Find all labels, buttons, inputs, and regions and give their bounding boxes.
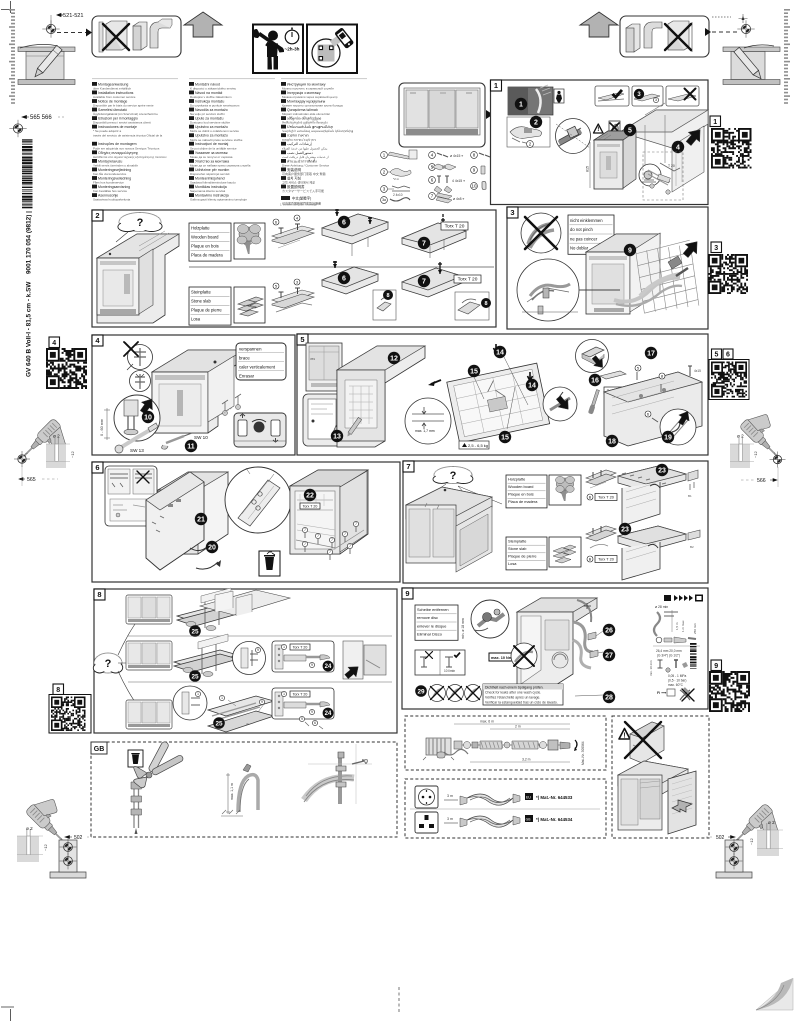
svg-text:502: 502	[74, 835, 83, 841]
svg-text:1: 1	[197, 692, 199, 696]
svg-text:8: 8	[56, 687, 60, 694]
svg-text:250 mm: 250 mm	[693, 623, 697, 634]
svg-text:SW 13: SW 13	[130, 448, 144, 453]
svg-text:29: 29	[417, 688, 425, 695]
svg-text:16: 16	[591, 378, 599, 385]
svg-text:7: 7	[422, 241, 426, 248]
svg-text:13: 13	[333, 434, 341, 441]
svg-text:Yetkili servis üzerinden u alı: Yetkili servis üzerinden u alınabilir	[93, 164, 138, 168]
svg-text:6: 6	[314, 721, 316, 725]
svg-text:min. 10 mm: min. 10 mm	[649, 660, 653, 676]
svg-text:Plaque en bois: Plaque en bois	[191, 244, 219, 249]
svg-text:Διατίθενται στα σημεία τεχνική: Διατίθενται στα σημεία τεχνικής εξυπηρέτ…	[93, 155, 167, 159]
svg-text:2: 2	[95, 211, 99, 220]
svg-text:502: 502	[716, 835, 725, 841]
svg-text:GB: GB	[526, 818, 532, 822]
svg-text:~12: ~12	[753, 450, 758, 458]
svg-text:يمكن الحصول عليها من خدمة العم: يمكن الحصول عليها من خدمة العملاء	[282, 146, 328, 150]
svg-text:22: 22	[306, 493, 314, 500]
svg-text:ø 4x15 ⌖: ø 4x15 ⌖	[450, 154, 463, 158]
svg-text:26,4 mm 20,0 mm: 26,4 mm 20,0 mm	[656, 649, 682, 653]
svg-text:Wooden board: Wooden board	[508, 484, 533, 489]
svg-text:2 4x10: 2 4x10	[393, 193, 403, 197]
svg-text:B2: B2	[690, 545, 694, 549]
svg-text:ø 4x8 ⌖: ø 4x8 ⌖	[453, 197, 464, 201]
svg-text:Na voljo pri servisni službi: Na voljo pri servisni službi	[190, 112, 225, 116]
svg-text:B1: B1	[688, 494, 692, 498]
svg-text:3a: 3a	[382, 198, 386, 202]
svg-text:Fåes hos kundeservice: Fåes hos kundeservice	[93, 181, 124, 185]
svg-text:~12: ~12	[70, 450, 75, 458]
svg-text:4: 4	[676, 145, 680, 152]
svg-text:565 566: 565 566	[30, 115, 52, 121]
svg-text:15: 15	[470, 369, 478, 376]
svg-text:7: 7	[349, 544, 351, 548]
svg-text:7: 7	[406, 462, 410, 471]
svg-text:Pode ser adquirida nos nossos: Pode ser adquirida nos nossos Serviços T…	[93, 146, 160, 150]
svg-text:*) Mat.-Nr. 644533: *) Mat.-Nr. 644533	[536, 795, 573, 800]
svg-text:Stone slab: Stone slab	[191, 299, 211, 304]
svg-text:!: !	[623, 733, 625, 740]
svg-text:Diese Anleitung / Customer Ser: Diese Anleitung / Customer Service	[282, 164, 330, 168]
svg-text:Fi ⟶: Fi ⟶	[657, 690, 667, 695]
svg-text:6: 6	[95, 463, 99, 472]
svg-text:9: 9	[311, 663, 313, 667]
svg-text:10 l/min: 10 l/min	[444, 669, 455, 673]
svg-text:9: 9	[257, 648, 259, 652]
svg-text:7: 7	[317, 534, 319, 538]
svg-text:815: 815	[586, 166, 590, 172]
svg-text:9: 9	[301, 717, 303, 721]
svg-text:7: 7	[355, 522, 357, 526]
svg-text:2 m: 2 m	[515, 725, 521, 729]
svg-text:Dichtheit nach einem Spülgang: Dichtheit nach einem Spülgang prüfen.	[485, 686, 543, 690]
svg-text:enlever le disque: enlever le disque	[417, 623, 446, 628]
svg-text:24: 24	[325, 711, 332, 717]
svg-text:Holzplatte: Holzplatte	[508, 476, 525, 481]
svg-text:4: 4	[52, 340, 56, 347]
svg-text:1: 1	[713, 119, 717, 126]
svg-text:Torx T 20: Torx T 20	[598, 557, 614, 561]
svg-text:~12: ~12	[749, 837, 754, 845]
svg-text:3 m: 3 m	[447, 817, 453, 821]
svg-text:18: 18	[608, 439, 616, 446]
svg-text:23: 23	[621, 527, 629, 534]
svg-text:Можно получить в сервисной слу: Можно получить в сервисной службе	[282, 87, 334, 91]
svg-text:მომსახურების ცენტრში მიიღება: მომსახურების ცენტრში მიიღება	[282, 121, 328, 125]
svg-text:Plaque de pierre: Plaque de pierre	[191, 308, 222, 313]
svg-text:EU: EU	[526, 796, 531, 800]
svg-text:*2 m: *2 m	[393, 177, 400, 181]
svg-text:ø 2: ø 2	[53, 434, 60, 439]
svg-text:No doblar: No doblar	[570, 246, 589, 251]
svg-text:9: 9	[714, 663, 718, 670]
svg-text:Dostupno kod servisne službe: Dostupno kod servisne službe	[190, 121, 230, 125]
svg-text:Saadaval klienditeeninduse kau: Saadaval klienditeeninduse kaudu	[190, 181, 236, 185]
svg-text:17: 17	[647, 351, 655, 358]
svg-text:Enrasar: Enrasar	[239, 374, 255, 379]
svg-text:Losa: Losa	[191, 316, 201, 321]
svg-text:Holzplatte: Holzplatte	[191, 226, 210, 231]
svg-text:~12: ~12	[43, 843, 48, 851]
svg-text:6: 6	[726, 352, 730, 359]
svg-text:max. 1,7 mm: max. 1,7 mm	[415, 429, 435, 433]
svg-text:ø 2: ø 2	[768, 820, 775, 825]
svg-text:GV 640 B Voll-I - 81,5 cm - k.: GV 640 B Voll-I - 81,5 cm - k.SW	[26, 281, 33, 377]
svg-text:Scheibe entfernen: Scheibe entfernen	[417, 607, 449, 612]
svg-text:3: 3	[510, 208, 514, 217]
svg-text:565: 565	[27, 477, 36, 483]
svg-text:25: 25	[215, 720, 223, 727]
svg-text:Kan fås via kundeservice: Kan fås via kundeservice	[93, 172, 127, 176]
svg-text:23: 23	[658, 468, 666, 475]
svg-text:Disponohet nëpërmjet servisit: Disponohet nëpërmjet servisit	[190, 172, 230, 176]
svg-text:5: 5	[628, 128, 632, 135]
svg-text:Placa de madera: Placa de madera	[191, 252, 223, 257]
svg-text:nicht einklemmen: nicht einklemmen	[570, 218, 603, 223]
svg-text:Torx T 20: Torx T 20	[445, 224, 465, 230]
svg-text:12: 12	[390, 356, 398, 363]
svg-text:Կարելի է ստանալ սպասարկման կեն: Կարելի է ստանալ սպասարկման կենտրոնից	[282, 129, 353, 133]
svg-text:6: 6	[342, 220, 346, 227]
svg-text:brace: brace	[239, 356, 250, 361]
svg-text:1: 1	[519, 102, 523, 109]
svg-text:Torx T 20: Torx T 20	[303, 504, 318, 508]
svg-text:0 - 60 mm: 0 - 60 mm	[100, 419, 104, 436]
svg-text:(0,5 - 10 bar): (0,5 - 10 bar)	[668, 679, 686, 683]
svg-text:8: 8	[97, 590, 101, 599]
svg-text:Verificar la estanqueidad tras: Verificar la estanqueidad tras un ciclo …	[485, 701, 558, 705]
svg-text:566: 566	[757, 478, 766, 484]
svg-text:9: 9	[311, 710, 313, 714]
svg-text:SW 10: SW 10	[194, 435, 208, 440]
svg-text:20: 20	[208, 545, 216, 552]
svg-text:7: 7	[422, 279, 426, 286]
svg-text:3: 3	[655, 98, 657, 102]
svg-text:remove disc: remove disc	[417, 615, 438, 620]
svg-text:5: 5	[300, 335, 304, 344]
svg-text:*) Mat.-Nr. 644534: *) Mat.-Nr. 644534	[536, 817, 573, 822]
svg-text:max. 1,1 m: max. 1,1 m	[230, 783, 234, 800]
svg-text:GB: GB	[94, 746, 105, 753]
svg-text:カスタマーサービスで入手可能: カスタマーサービスで入手可能	[282, 188, 324, 193]
svg-text:Se pot obţine de la unităţile: Se pot obţine de la unităţile service	[190, 146, 237, 150]
svg-text:max. 6 m: max. 6 m	[480, 720, 494, 724]
svg-text:ניתן לקבל בשירות הלקוחות: ניתן לקבל בשירות הלקוחות	[282, 138, 316, 142]
svg-text:2,5 - 6,5 kg: 2,5 - 6,5 kg	[468, 443, 488, 448]
svg-text:Torx T 20: Torx T 20	[293, 645, 308, 649]
svg-text:24: 24	[325, 664, 332, 670]
svg-text:25: 25	[191, 628, 199, 635]
svg-text:از خدمات مشتريان قابل دريافت ا: از خدمات مشتريان قابل دريافت است	[282, 155, 329, 159]
svg-text:do not pinch: do not pinch	[570, 227, 593, 232]
svg-text:Може да се набави преко сервис: Може да се набави преко сервисна служба	[190, 164, 251, 168]
svg-text:1: 1	[494, 81, 498, 90]
svg-text:2: 2	[534, 120, 538, 127]
svg-text:4x: 4x	[246, 722, 250, 726]
svg-text:7: 7	[329, 550, 331, 554]
svg-text:27: 27	[605, 653, 613, 660]
svg-text:Dostupné v službe zákazníkom: Dostupné v službe zákazníkom	[190, 95, 232, 99]
svg-text:(G 3/4") (G 1/2"): (G 3/4") (G 1/2")	[657, 654, 680, 658]
svg-text:Torx T 20: Torx T 20	[293, 692, 308, 696]
svg-text:15: 15	[501, 435, 509, 442]
svg-text:1: 1	[283, 645, 285, 649]
svg-text:3: 3	[714, 245, 718, 252]
svg-text:1: 1	[221, 696, 223, 700]
svg-text:través del servicio de asisten: través del servicio de asistencia técnic…	[93, 134, 163, 138]
svg-text:max. 10 Nm: max. 10 Nm	[491, 656, 513, 660]
svg-text:4x15: 4x15	[694, 369, 701, 373]
svg-text:6: 6	[342, 276, 346, 283]
svg-text:9: 9	[261, 700, 263, 704]
svg-text:Torx T 20: Torx T 20	[458, 277, 478, 283]
svg-text:7: 7	[304, 542, 306, 546]
svg-text:Vérifiez l'étanchéité après un: Vérifiez l'étanchéité après un lavage.	[485, 696, 540, 700]
svg-text:ne pas coincer: ne pas coincer	[570, 236, 598, 241]
svg-text:7: 7	[344, 532, 346, 536]
svg-text:1 Vorbereitung der Montage: 1 Vorbereitung der Montage	[280, 203, 318, 207]
svg-text:10: 10	[471, 184, 477, 189]
svg-text:?: ?	[450, 470, 457, 482]
svg-text:4 4x15 ⌖: 4 4x15 ⌖	[452, 179, 465, 183]
svg-text:10: 10	[144, 415, 152, 422]
svg-text:359: 359	[310, 357, 315, 361]
svg-text:Saņemama klientu servisā: Saņemama klientu servisā	[190, 189, 226, 193]
svg-text:Do uzyskania w punkcie serwiso: Do uzyskania w punkcie serwisowym	[190, 104, 240, 108]
svg-text:Plaque de pierre: Plaque de pierre	[508, 554, 537, 559]
svg-text:7: 7	[304, 528, 306, 532]
svg-text:3,2 m: 3,2 m	[522, 758, 531, 762]
svg-text:Saatavissa huoltopalvelusta: Saatavissa huoltopalvelusta	[93, 198, 131, 202]
svg-text:고객 서비스 센터에서 제공: 고객 서비스 센터에서 제공	[282, 180, 315, 185]
svg-text:9001 170 054 (9812) |: 9001 170 054 (9812) |	[26, 211, 33, 274]
svg-text:!: !	[597, 126, 599, 133]
svg-text:9: 9	[628, 248, 632, 255]
svg-text:可向客户服务部门索取 中文 繁體: 可向客户服务部门索取 中文 繁體	[282, 171, 326, 176]
svg-text:1,5 m: 1,5 m	[675, 622, 679, 630]
svg-text:28: 28	[605, 695, 613, 702]
svg-text:über Kundendienst erhältlich: über Kundendienst erhältlich	[93, 87, 131, 91]
svg-text:T 20: T 20	[668, 164, 675, 168]
svg-text:Galima gauti klientų aptarnavi: Galima gauti klientų aptarnavimo tarnybo…	[190, 198, 247, 202]
svg-text:Available from customer servic: Available from customer service	[93, 95, 136, 99]
svg-text:Disponibili presso i servizi a: Disponibili presso i servizi assistenza …	[93, 121, 151, 125]
svg-text:3 m: 3 m	[447, 794, 453, 798]
svg-text:Eliminar Disco: Eliminar Disco	[417, 632, 442, 637]
svg-text:521-521: 521-521	[63, 13, 84, 19]
svg-text:1: 1	[283, 692, 285, 696]
svg-text:9: 9	[405, 589, 409, 598]
svg-text:max. 60°C: max. 60°C	[668, 683, 684, 687]
svg-text:25: 25	[191, 673, 199, 680]
svg-text:Ügyfélszolgálatnál (ön Szerviz: Ügyfélszolgálatnál (ön Szerviznél) szere…	[93, 112, 158, 116]
svg-text:Қызмет көрсету орталығынан алу: Қызмет көрсету орталығынан алуға болады	[282, 104, 343, 108]
svg-text:Losa: Losa	[508, 561, 517, 566]
svg-text:K dispozici u zákaznického ser: K dispozici u zákaznického servisu	[190, 87, 237, 91]
svg-text:26: 26	[605, 628, 613, 635]
svg-text:8: 8	[386, 293, 389, 299]
svg-text:Може да се получи от сервиза: Може да се получи от сервиза	[190, 155, 233, 159]
svg-text:Wooden board: Wooden board	[191, 235, 219, 240]
svg-text:Stone slab: Stone slab	[508, 546, 526, 551]
svg-text:Müştəri xidmətindən əldə oluna: Müştəri xidmətindən əldə oluna bilər	[282, 112, 330, 116]
svg-text:Placa de madera: Placa de madera	[508, 499, 538, 504]
svg-text:min. ø 18 mm: min. ø 18 mm	[461, 618, 465, 639]
svg-text:Mat.-Nr. 300564: Mat.-Nr. 300564	[581, 741, 585, 765]
svg-text:Torx T 20: Torx T 20	[598, 495, 614, 499]
svg-text:* Se puede adquirir a: * Se puede adquirir a	[93, 129, 122, 133]
svg-text:7: 7	[331, 538, 333, 542]
svg-text:Može se nabaviti preko servisn: Može se nabaviti preko servisne službe	[190, 138, 243, 142]
svg-text:8: 8	[484, 301, 487, 307]
svg-text:5: 5	[715, 352, 719, 359]
svg-text:1 m max: 1 m max	[681, 620, 685, 632]
svg-text:Može se dobiti u ovlašćenom se: Može se dobiti u ovlašćenom servisu	[190, 129, 239, 133]
svg-text:Disponible par le biais du ser: Disponible par le biais du service après…	[93, 104, 154, 108]
svg-text:中文(繁體字): 中文(繁體字)	[292, 196, 311, 201]
svg-text:0,05 - 1 MPa: 0,05 - 1 MPa	[668, 674, 686, 678]
svg-text:?: ?	[105, 658, 112, 670]
svg-text:ø 2: ø 2	[737, 434, 744, 439]
svg-text:~2h-3h: ~2h-3h	[285, 47, 300, 52]
svg-text:11: 11	[187, 444, 195, 451]
svg-text:Можна отримати через сервісний: Можна отримати через сервісний центр	[282, 95, 338, 99]
svg-text:ø 28 min: ø 28 min	[655, 605, 668, 609]
svg-text:14: 14	[528, 383, 536, 390]
svg-text:19: 19	[664, 435, 672, 442]
svg-text:caler verticalement: caler verticalement	[239, 365, 276, 370]
svg-text:Check for leaks after one wash: Check for leaks after one wash cycle.	[485, 691, 541, 695]
svg-text:Steinplatte: Steinplatte	[191, 290, 211, 295]
svg-text:Steinplatte: Steinplatte	[508, 538, 526, 543]
svg-text:?: ?	[137, 217, 144, 229]
svg-text:Plaque en bois: Plaque en bois	[508, 492, 534, 497]
svg-text:Kan beställas hos service: Kan beställas hos service	[93, 189, 127, 193]
svg-text:verspannen: verspannen	[239, 347, 262, 352]
svg-text:14: 14	[496, 350, 504, 357]
svg-text:21: 21	[197, 517, 205, 524]
